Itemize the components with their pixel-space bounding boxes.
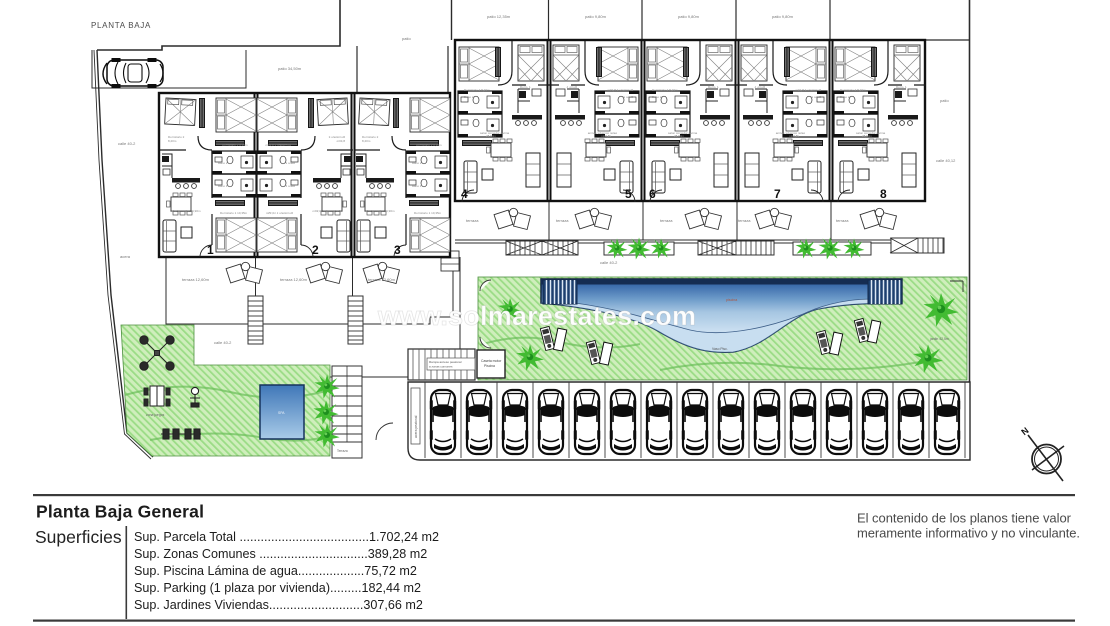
svg-text:4: 4	[461, 187, 468, 201]
svg-text:6: 6	[649, 187, 656, 201]
svg-text:8: 8	[880, 187, 887, 201]
svg-text:7: 7	[774, 187, 781, 201]
svg-text:1: 1	[207, 243, 214, 257]
svg-text:piscina: piscina	[726, 298, 737, 302]
svg-text:acera peatonal: acera peatonal	[414, 415, 418, 438]
svg-text:terraza: terraza	[556, 218, 569, 223]
svg-text:3: 3	[394, 243, 401, 257]
svg-text:patio 9,80m: patio 9,80m	[772, 14, 794, 19]
svg-text:2: 2	[312, 243, 319, 257]
svg-text:meramente informativo y no vin: meramente informativo y no vinculante.	[857, 526, 1080, 541]
svg-text:terraza: terraza	[836, 218, 849, 223]
svg-text:terraza 12,60m: terraza 12,60m	[280, 277, 308, 282]
svg-text:terraza: terraza	[738, 218, 751, 223]
svg-text:Sup. Parking (1 plaza por vivi: Sup. Parking (1 plaza por vivienda).....…	[134, 581, 421, 595]
svg-text:Caseta motor: Caseta motor	[481, 359, 502, 363]
svg-text:patio 9,80m: patio 9,80m	[585, 14, 607, 19]
svg-text:Superficies: Superficies	[35, 527, 122, 547]
svg-text:patio: patio	[940, 98, 949, 103]
svg-text:Terraza: Terraza	[337, 449, 348, 453]
svg-text:terraza 12,60m: terraza 12,60m	[368, 277, 396, 282]
svg-text:terraza 12,60m: terraza 12,60m	[182, 277, 210, 282]
svg-text:calle 40-2: calle 40-2	[214, 340, 232, 345]
svg-text:a zonas comunes: a zonas comunes	[429, 365, 453, 369]
svg-text:acera: acera	[120, 254, 131, 259]
svg-text:Sup. Piscina Lámina de agua...: Sup. Piscina Lámina de agua.............…	[134, 564, 417, 578]
svg-text:www.solmarestates.com: www.solmarestates.com	[377, 301, 696, 331]
svg-text:Rampa acceso peatonal: Rampa acceso peatonal	[429, 360, 462, 364]
svg-text:patio 9,80m: patio 9,80m	[678, 14, 700, 19]
svg-text:El contenido de los planos tie: El contenido de los planos tiene valor	[857, 511, 1072, 526]
svg-text:calle 40,12: calle 40,12	[936, 158, 956, 163]
svg-text:Sup. Zonas Comunes ...........: Sup. Zonas Comunes .....................…	[134, 547, 427, 561]
svg-text:zona juegos: zona juegos	[146, 413, 165, 417]
svg-text:5: 5	[625, 187, 632, 201]
svg-text:Sup. Parcela Total ...........: Sup. Parcela Total .....................…	[134, 530, 439, 544]
svg-text:patio 12,35m: patio 12,35m	[487, 14, 511, 19]
svg-text:terraza: terraza	[660, 218, 673, 223]
svg-text:calle 40-2: calle 40-2	[118, 141, 136, 146]
svg-text:calle 40-2: calle 40-2	[600, 260, 618, 265]
svg-text:patio: patio	[402, 36, 411, 41]
svg-text:PLANTA BAJA: PLANTA BAJA	[91, 21, 151, 30]
svg-text:jardin 42,5m: jardin 42,5m	[929, 337, 949, 341]
svg-text:Sup. Jardines Viviendas.......: Sup. Jardines Viviendas.................…	[134, 598, 423, 612]
svg-text:patio 34,50m: patio 34,50m	[278, 66, 302, 71]
svg-text:terraza: terraza	[466, 218, 479, 223]
svg-text:Vaso Pisc.: Vaso Pisc.	[712, 347, 728, 351]
svg-text:Planta Baja General: Planta Baja General	[36, 502, 204, 522]
svg-text:SPA: SPA	[278, 411, 285, 415]
svg-text:Piscina: Piscina	[484, 364, 495, 368]
